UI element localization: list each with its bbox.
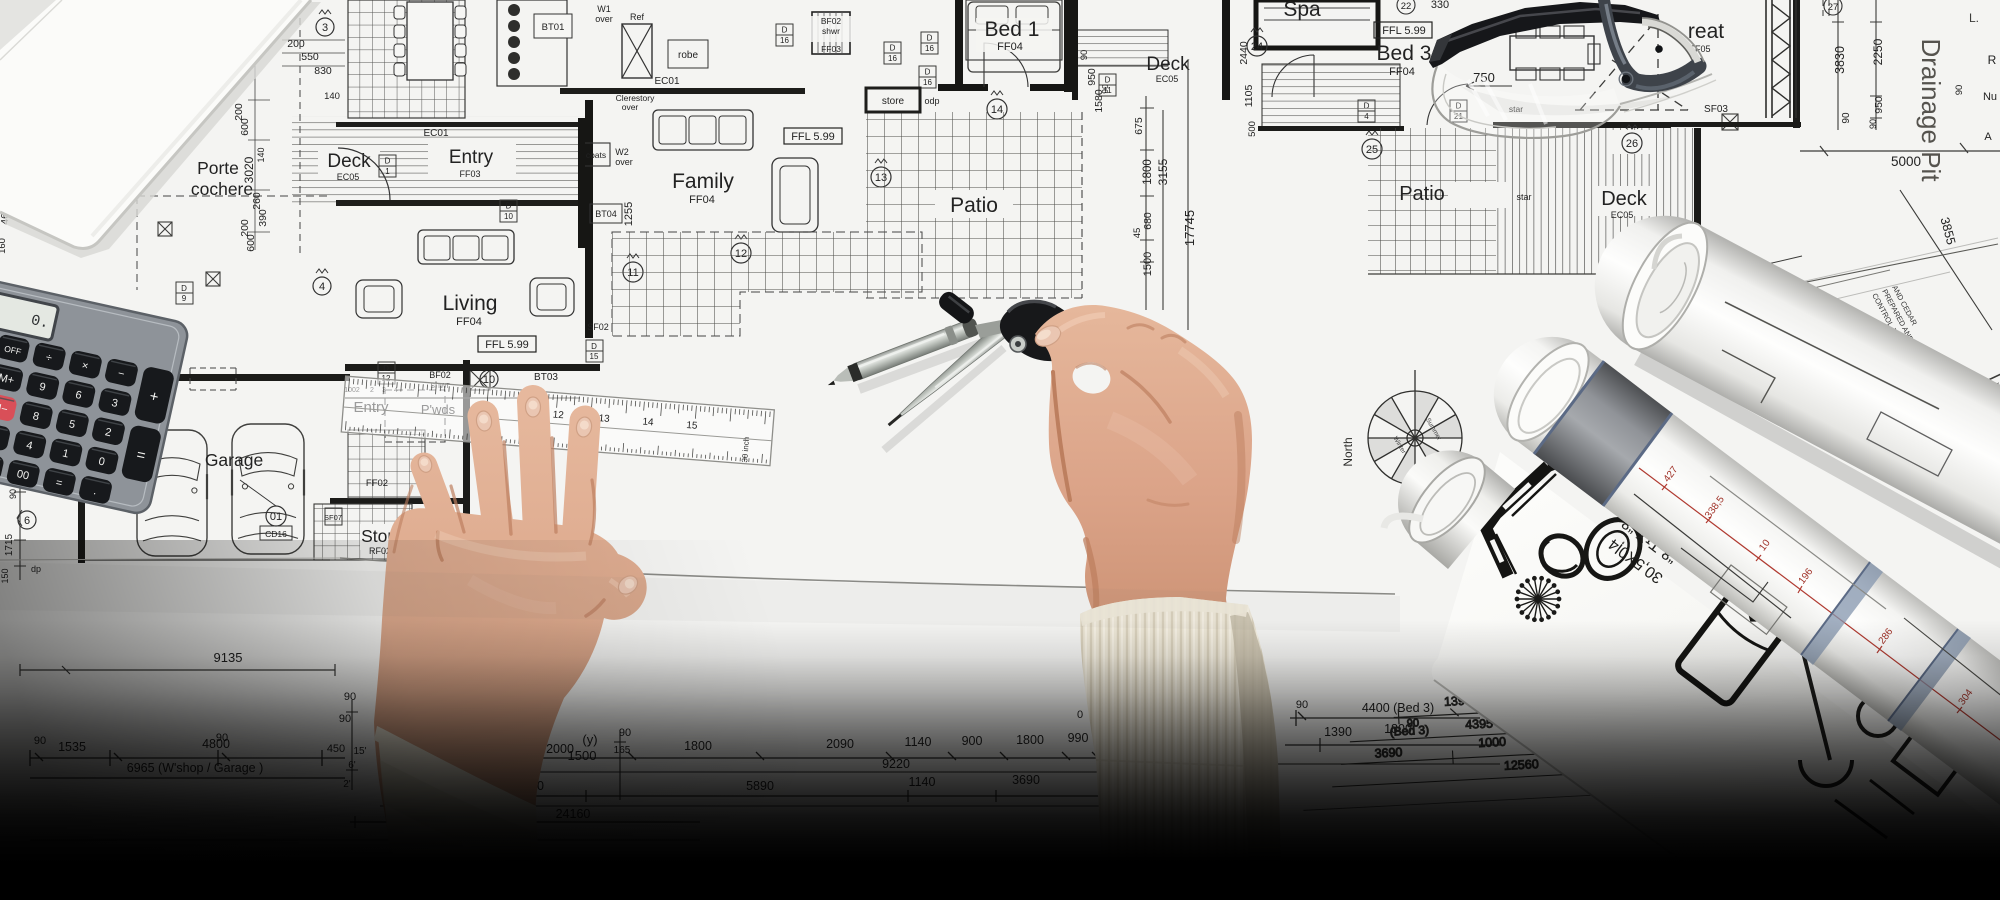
svg-text:24: 24 bbox=[1251, 41, 1263, 53]
svg-text:D: D bbox=[782, 26, 788, 35]
svg-text:200: 200 bbox=[239, 219, 251, 237]
svg-text:D: D bbox=[385, 157, 391, 166]
svg-text:1500: 1500 bbox=[1142, 252, 1154, 276]
svg-text:22: 22 bbox=[1401, 1, 1412, 12]
svg-text:680: 680 bbox=[1142, 212, 1154, 230]
svg-text:16: 16 bbox=[925, 44, 934, 53]
svg-text:Deck: Deck bbox=[1601, 188, 1648, 210]
svg-text:2440: 2440 bbox=[1238, 41, 1250, 65]
svg-text:160: 160 bbox=[0, 238, 8, 254]
svg-text:16: 16 bbox=[780, 36, 789, 45]
svg-text:140: 140 bbox=[324, 91, 340, 102]
svg-text:6: 6 bbox=[24, 515, 30, 527]
svg-text:3155: 3155 bbox=[1156, 158, 1170, 185]
svg-text:EC05: EC05 bbox=[1156, 74, 1179, 84]
svg-text:FF03: FF03 bbox=[821, 44, 841, 54]
svg-text:Patio: Patio bbox=[1399, 183, 1445, 205]
svg-text:FF02: FF02 bbox=[366, 478, 388, 489]
svg-text:16: 16 bbox=[888, 54, 897, 63]
svg-text:3020: 3020 bbox=[242, 156, 256, 183]
svg-text:D: D bbox=[1105, 76, 1111, 85]
svg-text:SF03: SF03 bbox=[1704, 104, 1728, 115]
svg-text:D: D bbox=[383, 364, 389, 373]
svg-text:FF04: FF04 bbox=[689, 194, 715, 206]
svg-text:Family: Family bbox=[672, 170, 734, 193]
svg-text:1800: 1800 bbox=[1142, 159, 1154, 185]
svg-text:90: 90 bbox=[1079, 50, 1090, 61]
svg-text:L.: L. bbox=[1969, 11, 1979, 25]
svg-text:SF07: SF07 bbox=[324, 513, 342, 522]
svg-text:45: 45 bbox=[1132, 228, 1143, 239]
svg-text:1: 1 bbox=[385, 167, 390, 176]
svg-text:over: over bbox=[615, 157, 633, 167]
svg-text:16: 16 bbox=[923, 78, 932, 87]
svg-text:600: 600 bbox=[239, 118, 251, 136]
svg-text:260: 260 bbox=[251, 192, 263, 210]
svg-text:FFL 5.99: FFL 5.99 bbox=[1382, 25, 1426, 37]
svg-text:Drainage Pit: Drainage Pit bbox=[1916, 38, 1946, 182]
svg-text:Ref: Ref bbox=[630, 12, 645, 22]
svg-text:12: 12 bbox=[552, 410, 564, 422]
svg-text:North: North bbox=[1341, 437, 1355, 466]
svg-text:FF03: FF03 bbox=[459, 169, 480, 179]
svg-text:CD16: CD16 bbox=[265, 529, 287, 539]
svg-text:Deck: Deck bbox=[327, 151, 371, 172]
svg-text:140: 140 bbox=[256, 147, 266, 162]
svg-text:R: R bbox=[1988, 53, 1997, 67]
svg-text:odp: odp bbox=[924, 96, 939, 106]
svg-text:950: 950 bbox=[1873, 96, 1885, 114]
svg-text:A: A bbox=[1984, 131, 1992, 143]
svg-text:Bed 3: Bed 3 bbox=[1377, 42, 1432, 65]
svg-text:BT04: BT04 bbox=[595, 209, 617, 219]
svg-text:10: 10 bbox=[504, 212, 513, 221]
svg-text:1105: 1105 bbox=[1243, 85, 1255, 108]
svg-text:830: 830 bbox=[314, 65, 332, 77]
svg-text:950: 950 bbox=[1086, 68, 1098, 86]
svg-text:90: 90 bbox=[1868, 119, 1878, 129]
svg-text:over: over bbox=[622, 102, 639, 112]
svg-text:EC01: EC01 bbox=[423, 128, 448, 139]
svg-text:shwr: shwr bbox=[822, 26, 840, 36]
svg-text:10: 10 bbox=[483, 374, 495, 386]
svg-text:robe: robe bbox=[678, 50, 698, 61]
svg-text:reat: reat bbox=[1688, 20, 1724, 43]
svg-text:D: D bbox=[925, 68, 931, 77]
svg-text:390: 390 bbox=[257, 209, 269, 227]
svg-text:star: star bbox=[1516, 192, 1531, 202]
svg-text:17745: 17745 bbox=[1182, 210, 1197, 246]
svg-text:BT01: BT01 bbox=[542, 22, 565, 33]
svg-text:3830: 3830 bbox=[1833, 46, 1847, 74]
svg-text:90: 90 bbox=[1100, 84, 1110, 94]
svg-text:SF02: SF02 bbox=[587, 322, 609, 332]
svg-text:01: 01 bbox=[270, 511, 282, 523]
svg-text:Spa: Spa bbox=[1283, 0, 1321, 21]
svg-text:over: over bbox=[595, 14, 613, 24]
svg-text:BF02: BF02 bbox=[821, 16, 842, 26]
svg-text:EC05: EC05 bbox=[337, 172, 360, 182]
svg-text:W2: W2 bbox=[615, 147, 629, 157]
svg-text:Patio: Patio bbox=[950, 194, 998, 217]
svg-text:W1: W1 bbox=[597, 4, 611, 14]
svg-text:EC05: EC05 bbox=[1611, 210, 1634, 220]
svg-text:3: 3 bbox=[322, 22, 328, 34]
svg-text:D: D bbox=[591, 342, 597, 351]
svg-text:D: D bbox=[506, 202, 512, 211]
svg-text:1255: 1255 bbox=[623, 202, 635, 226]
svg-text:D: D bbox=[181, 284, 187, 293]
svg-text:26: 26 bbox=[1626, 138, 1638, 150]
svg-text:4: 4 bbox=[319, 281, 325, 293]
svg-text:200: 200 bbox=[233, 103, 245, 121]
svg-text:D: D bbox=[927, 34, 933, 43]
svg-text:D: D bbox=[890, 44, 896, 53]
svg-text:coats: coats bbox=[586, 150, 606, 160]
svg-text:9: 9 bbox=[182, 294, 187, 303]
svg-text:330: 330 bbox=[1431, 0, 1449, 11]
svg-text:FF04: FF04 bbox=[456, 316, 482, 328]
svg-text:2250: 2250 bbox=[1871, 38, 1885, 65]
svg-text:15: 15 bbox=[686, 420, 698, 432]
svg-text:BF02: BF02 bbox=[429, 370, 451, 380]
svg-text:EC01: EC01 bbox=[654, 76, 679, 87]
svg-text:27: 27 bbox=[1828, 2, 1839, 13]
svg-text:Living: Living bbox=[443, 292, 498, 315]
svg-text:FFL 5.99: FFL 5.99 bbox=[485, 339, 529, 351]
svg-text:FFL 5.99: FFL 5.99 bbox=[791, 131, 835, 143]
svg-text:Bed 1: Bed 1 bbox=[985, 18, 1040, 41]
svg-text:Nu: Nu bbox=[1983, 91, 1997, 103]
svg-text:store: store bbox=[882, 96, 905, 107]
svg-text:FF04: FF04 bbox=[997, 41, 1023, 53]
svg-text:Garage: Garage bbox=[205, 450, 263, 470]
svg-text:15: 15 bbox=[590, 352, 599, 361]
svg-text:500: 500 bbox=[1247, 121, 1258, 137]
svg-text:BT03: BT03 bbox=[534, 372, 558, 383]
svg-text:14: 14 bbox=[642, 417, 654, 429]
svg-text:Entry: Entry bbox=[449, 147, 494, 168]
svg-text:90: 90 bbox=[1954, 85, 1965, 96]
svg-text:675: 675 bbox=[1133, 117, 1145, 135]
svg-text:Porte: Porte bbox=[197, 158, 239, 178]
svg-text:FF04: FF04 bbox=[1389, 66, 1415, 78]
svg-text:90: 90 bbox=[8, 489, 18, 499]
svg-text:Deck: Deck bbox=[1146, 54, 1190, 75]
svg-text:90: 90 bbox=[1841, 112, 1852, 124]
